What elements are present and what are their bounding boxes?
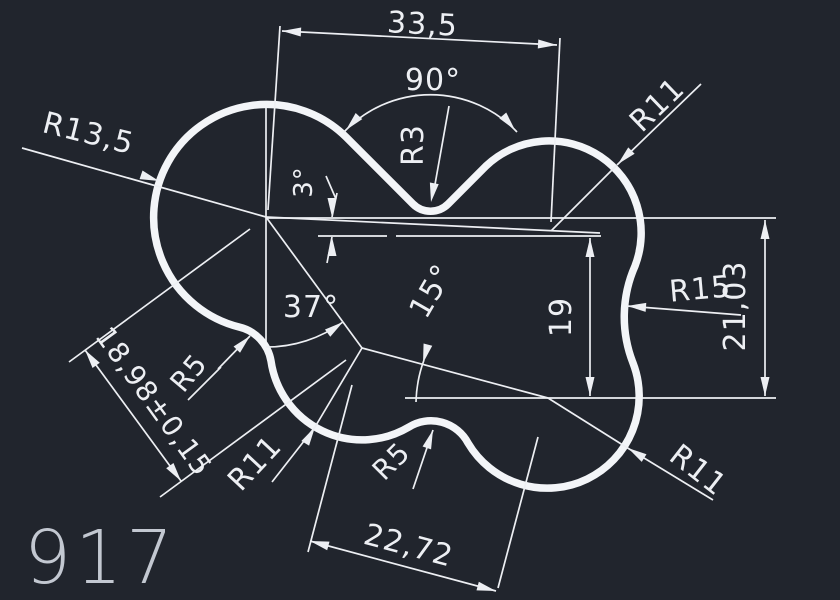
dim-19-label: 19 (544, 297, 579, 337)
part-number: 917 (24, 515, 177, 600)
angle-90-label: 90° (405, 63, 461, 98)
angle-3-label: 3° (289, 166, 319, 198)
dim-33-5-label: 33,5 (386, 5, 459, 44)
r15-label: R15 (668, 269, 733, 309)
cad-drawing: 33,5 90° R3 R11 R13,5 3° 37° (0, 0, 840, 600)
angle-37-label: 37° (283, 290, 339, 325)
r3-label: R3 (396, 124, 431, 166)
drawing-viewport: 33,5 90° R3 R11 R13,5 3° 37° (0, 0, 840, 600)
